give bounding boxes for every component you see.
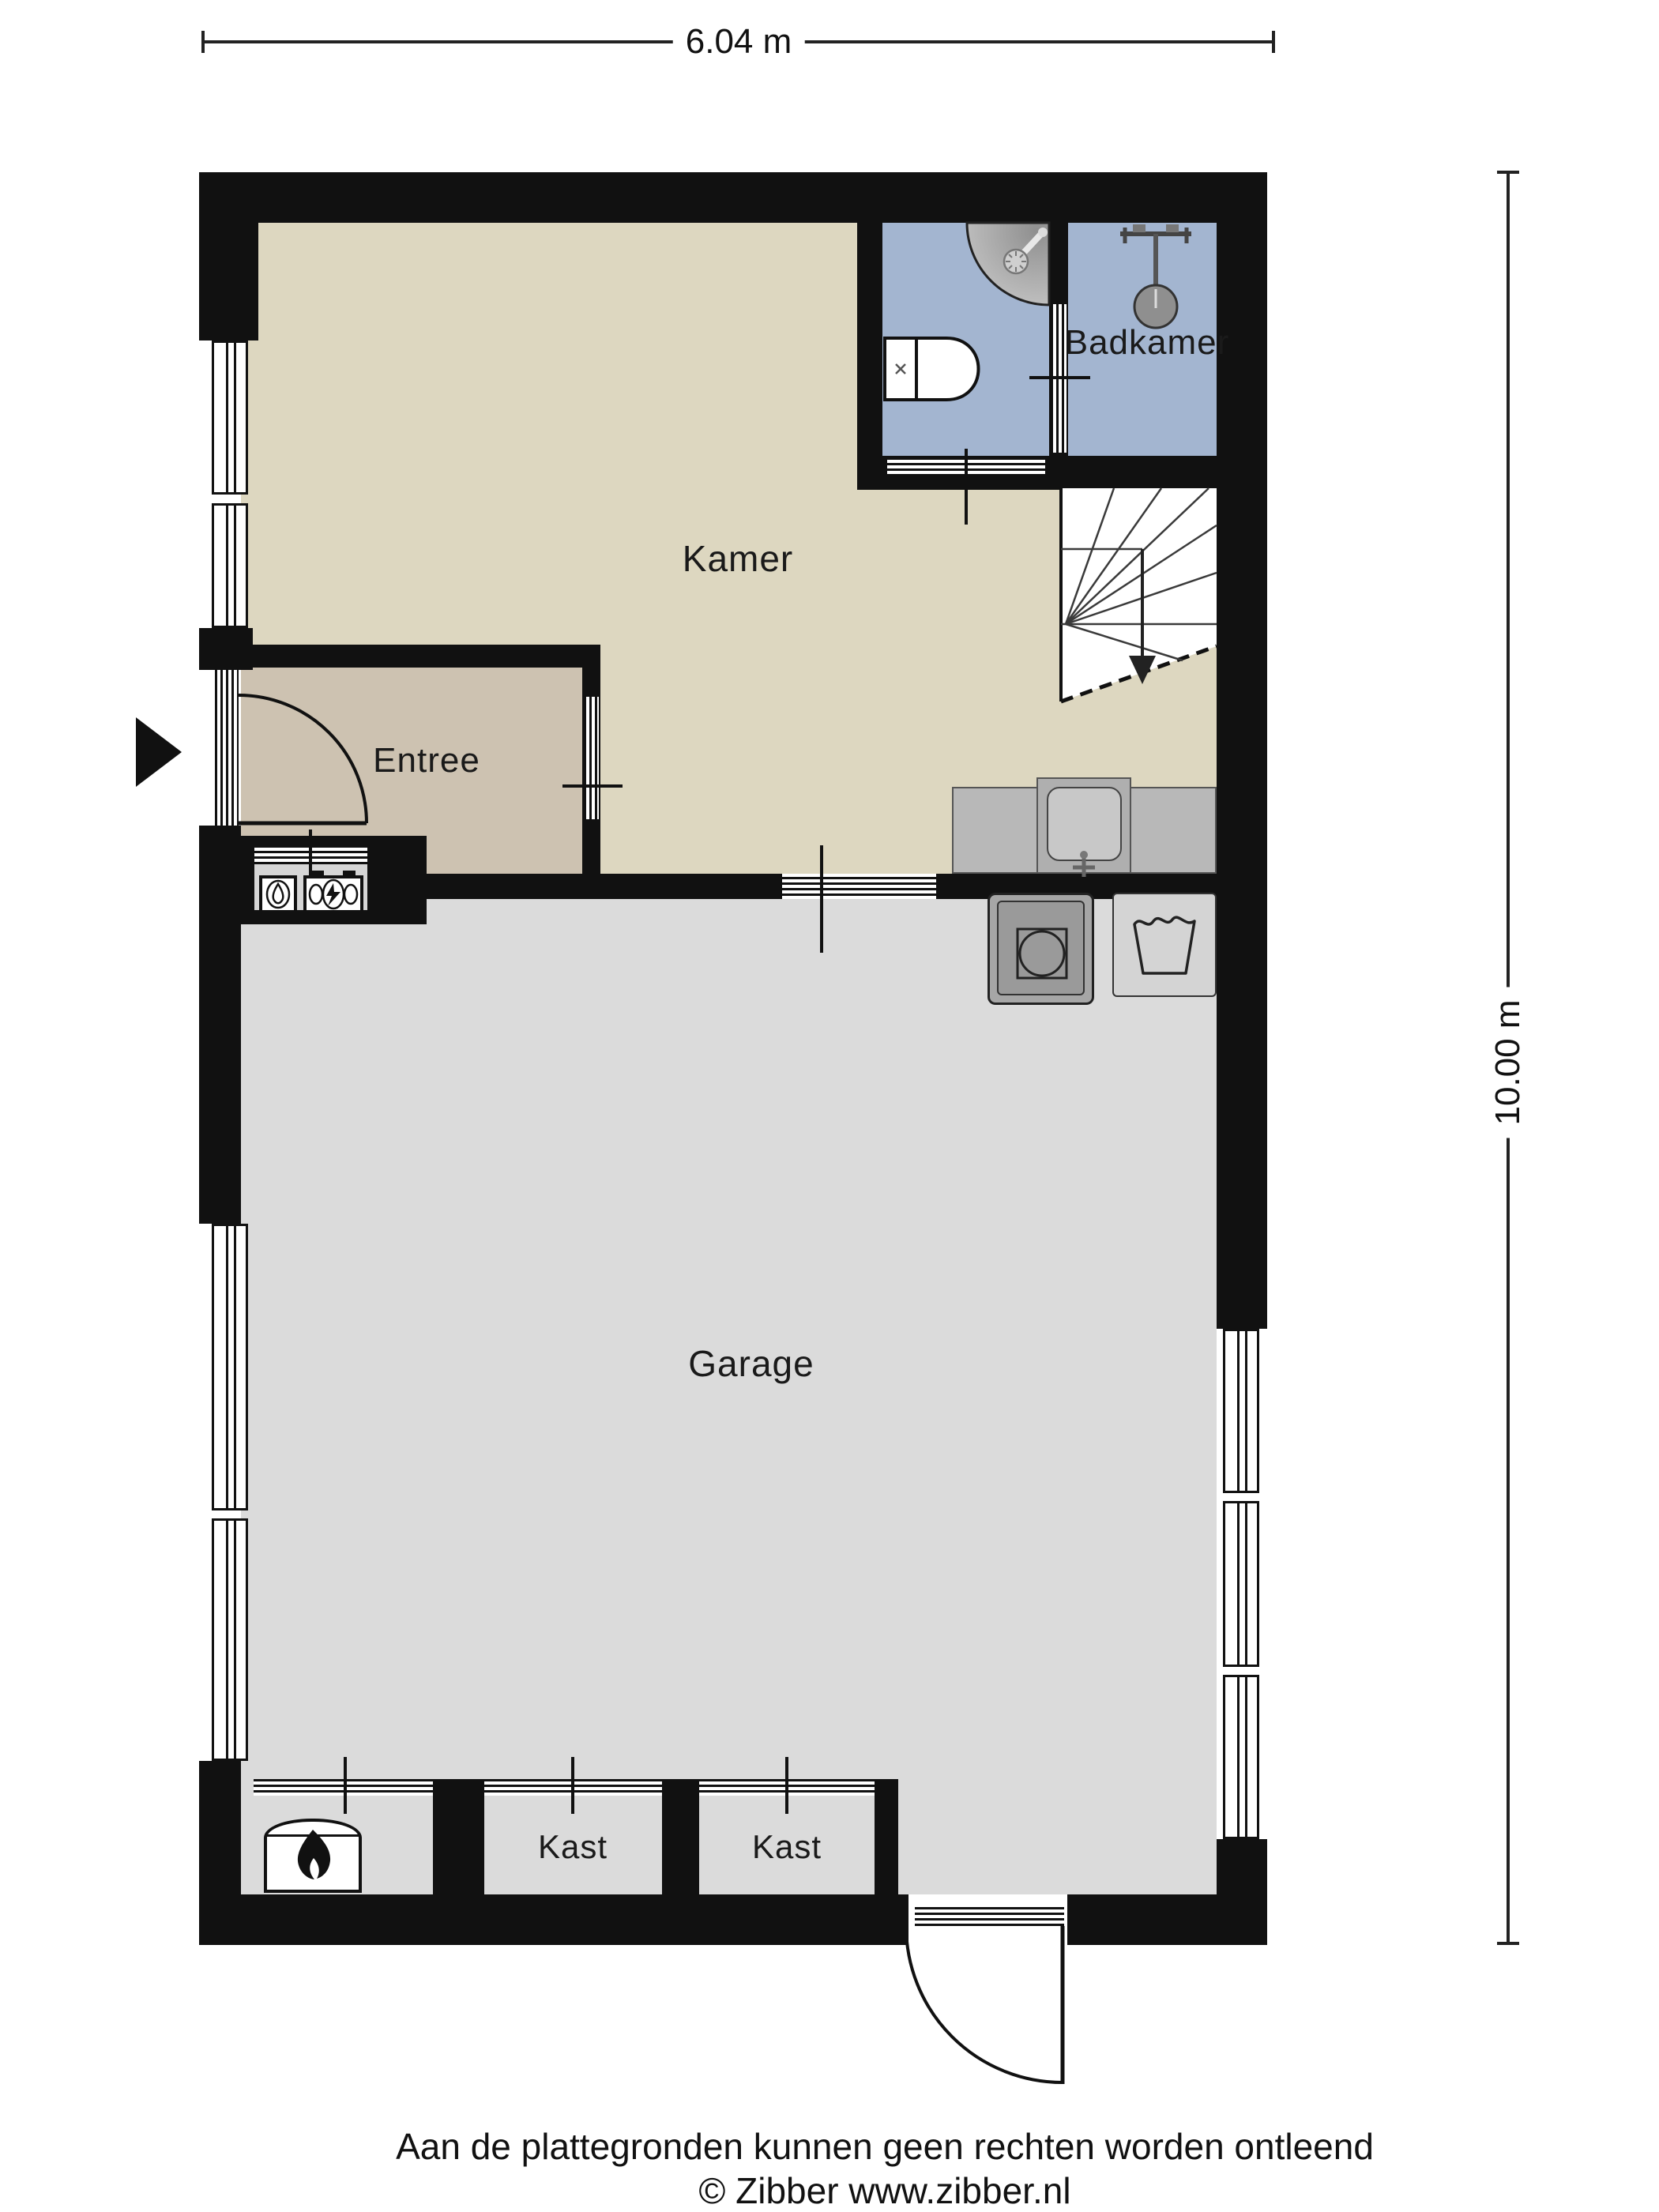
- tick-boiler-niche: [344, 1757, 347, 1814]
- dimension-height-tick-top: [1497, 171, 1519, 174]
- wall-kast-divider-1: [433, 1779, 484, 1894]
- window-glass-line: [1237, 1676, 1240, 1838]
- boiler-top-line: [267, 1834, 359, 1837]
- floorplan-canvas: Kamer Badkamer Entree Garage Kast Kast 6…: [0, 0, 1659, 2212]
- dimension-width-label: 6.04 m: [673, 21, 805, 63]
- entrance-arrow-icon: [136, 717, 182, 787]
- window-glass-line: [226, 342, 228, 493]
- tick-door-toilet: [965, 449, 968, 525]
- window-glass-line: [226, 1520, 228, 1759]
- window-glass-line: [1245, 1503, 1247, 1665]
- label-entree: Entree: [373, 741, 480, 781]
- laundry-tub-box: [1112, 893, 1217, 997]
- label-kamer: Kamer: [683, 537, 793, 580]
- wall-left-bottom-corner: [199, 1761, 241, 1945]
- window-kamer-left-upper: [212, 340, 248, 495]
- tick-kast-2: [785, 1757, 788, 1814]
- wall-entree-top: [199, 645, 600, 668]
- window-glass-line: [1245, 1676, 1247, 1838]
- washing-machine-panel: [997, 901, 1085, 995]
- wall-bottom-left: [199, 1894, 908, 1945]
- window-glass-line: [226, 505, 228, 626]
- tick-meter-cupboard: [309, 829, 312, 910]
- wall-kast-divider-3: [875, 1779, 898, 1894]
- window-glass-line: [226, 1225, 228, 1509]
- floor-toilet-room: [882, 223, 1049, 456]
- dimension-width-tick-right: [1272, 31, 1275, 53]
- footer-credit: © Zibber www.zibber.nl: [698, 2169, 1070, 2212]
- wall-toilet-left: [857, 223, 882, 490]
- back-door-glazing: [915, 1907, 1064, 1926]
- window-garage-right-1: [1223, 1329, 1259, 1493]
- tick-door-toilet-badkamer: [1029, 376, 1090, 379]
- window-garage-left-lower: [212, 1518, 248, 1761]
- dimension-height-tick-bottom: [1497, 1942, 1519, 1945]
- window-glass-line: [234, 1225, 236, 1509]
- dimension-height-label: 10.00 m: [1487, 987, 1529, 1138]
- window-kamer-left-lower: [212, 503, 248, 628]
- tick-door-entree-kamer: [562, 784, 623, 788]
- label-kast-1: Kast: [538, 1828, 608, 1866]
- tick-door-kamer-garage: [820, 845, 823, 953]
- window-glass-line: [234, 1520, 236, 1759]
- wall-left-top-corner: [199, 172, 258, 340]
- window-glass-line: [234, 505, 236, 626]
- label-kast-2: Kast: [752, 1828, 822, 1866]
- window-garage-right-2: [1223, 1501, 1259, 1667]
- label-badkamer: Badkamer: [1065, 323, 1230, 363]
- floor-garage: [241, 899, 1217, 1894]
- boiler: [264, 1819, 362, 1893]
- footer-disclaimer: Aan de plattegronden kunnen geen rechten…: [396, 2125, 1374, 2168]
- window-garage-left-upper: [212, 1224, 248, 1510]
- window-garage-right-3: [1223, 1675, 1259, 1839]
- back-door: [906, 1926, 1063, 2084]
- window-glass-line: [1237, 1503, 1240, 1665]
- door-kamer-garage: [782, 877, 936, 896]
- wall-kast-divider-2: [662, 1779, 699, 1894]
- wall-right-lower-corner: [1217, 1839, 1267, 1945]
- window-glass-line: [234, 342, 236, 493]
- dimension-width-tick-left: [201, 31, 205, 53]
- front-door-frame: [215, 670, 239, 826]
- door-entree-kamer: [584, 697, 599, 819]
- wall-top: [199, 172, 1267, 223]
- window-glass-line: [1245, 1330, 1247, 1492]
- tick-kast-1: [571, 1757, 574, 1814]
- kitchen-sink-basin: [1047, 787, 1122, 861]
- window-glass-line: [1237, 1330, 1240, 1492]
- label-garage: Garage: [688, 1342, 814, 1385]
